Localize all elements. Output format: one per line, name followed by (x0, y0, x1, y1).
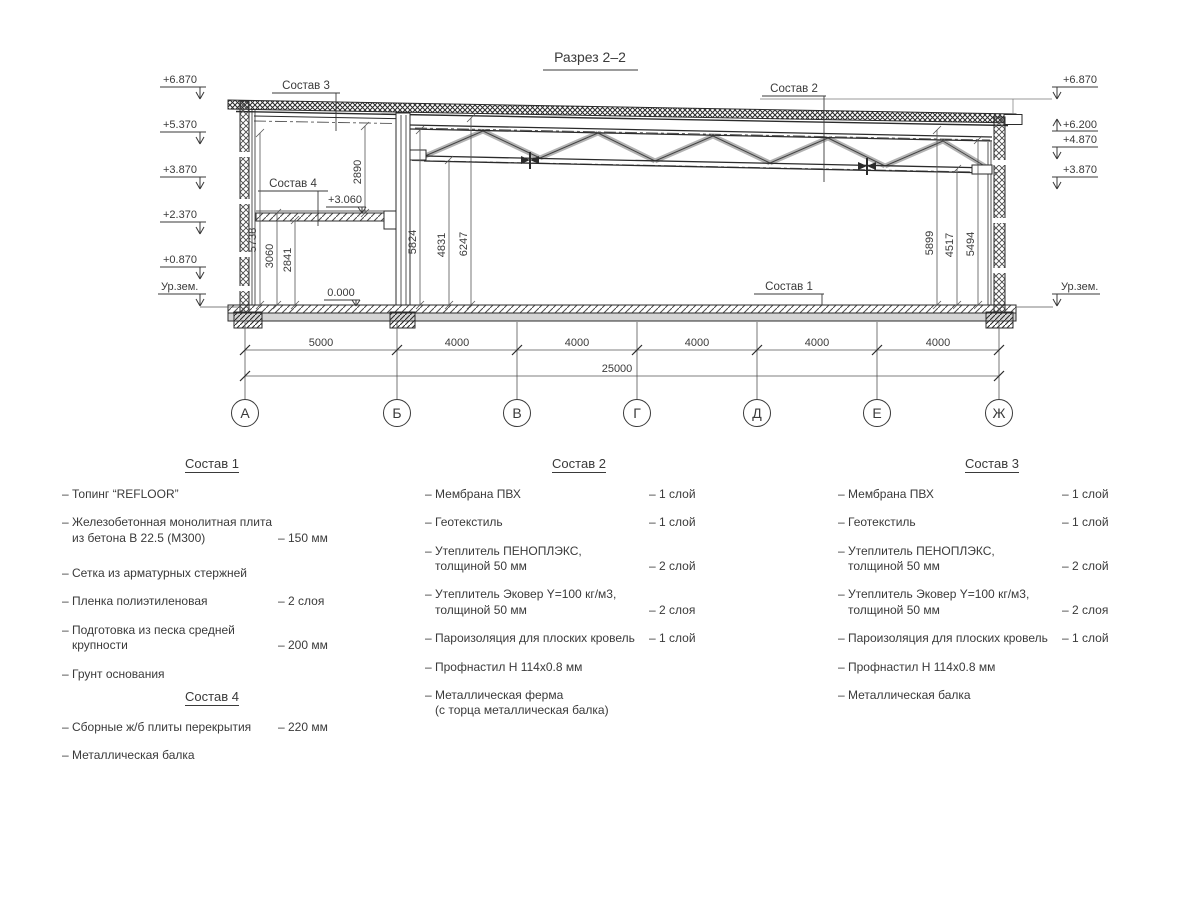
foundation-block (234, 312, 262, 328)
axis-label: Е (872, 405, 881, 421)
list-item: – Утеплитель Эковер Y=100 кг/м3,толщиной… (425, 587, 733, 618)
list-item: – Пароизоляция для плоских кровель – 1 с… (425, 631, 733, 646)
list-item: – Геотекстиль – 1 слой (425, 515, 733, 530)
composition-list-3: Состав 3 – Мембрана ПВХ – 1 слой – Геоте… (838, 456, 1146, 716)
elevation-label: +6.870 (1063, 74, 1097, 86)
elevation-label: +6.870 (163, 74, 197, 86)
axis-label: Б (392, 405, 401, 421)
elevation-label: Ур.зем. (161, 281, 198, 293)
composition-list-1: Состав 1 – Топинг “REFLOOR” – Железобето… (62, 456, 362, 777)
elevation-label: +4.870 (1063, 134, 1097, 146)
list-item: – Металлическая балка (838, 688, 1146, 703)
level-label: +3.060 (328, 194, 362, 206)
span-dim: 5000 (309, 337, 333, 349)
middle-wall (396, 113, 410, 305)
right-wall (988, 117, 1006, 321)
leader-label: Состав 4 (269, 178, 317, 190)
list-item: – Подготовка из песка среднейкрупности –… (62, 623, 362, 654)
list-item: – Утеплитель Эковер Y=100 кг/м3,толщиной… (838, 587, 1146, 618)
elevation-label: +3.870 (163, 164, 197, 176)
foundation-block (986, 312, 1013, 328)
list-title: Состав 2 (425, 456, 733, 471)
list-item: – Мембрана ПВХ – 1 слой (425, 487, 733, 502)
list-item: – Грунт основания (62, 667, 362, 682)
elevation-label: Ур.зем. (1061, 281, 1098, 293)
dim-label: 5494 (965, 232, 977, 256)
elevation-label: +5.370 (163, 119, 197, 131)
dim-label: 4831 (436, 233, 448, 257)
list-title: Состав 4 (62, 689, 362, 704)
list-item: – Металлическая ферма(с торца металличес… (425, 688, 733, 719)
list-item: – Мембрана ПВХ – 1 слой (838, 487, 1146, 502)
dim-label: 5824 (407, 230, 419, 254)
span-dim: 4000 (685, 337, 709, 349)
roof-assembly (228, 99, 1052, 126)
span-dim: 4000 (445, 337, 469, 349)
axis-label: Д (752, 405, 762, 421)
axis-label: Г (633, 405, 641, 421)
page-title: Разрез 2–2 (554, 49, 626, 65)
list-item: – Металлическая балка (62, 748, 362, 763)
foundation-block (390, 312, 415, 328)
list-item: – Утеплитель ПЕНОПЛЭКС,толщиной 50 мм – … (425, 544, 733, 575)
dim-label: 5738 (247, 228, 259, 252)
leader-label: Состав 2 (770, 83, 818, 95)
axis-bubbles: А Б В Г Д Е Ж (232, 400, 1013, 427)
list-item: – Железобетонная монолитная плитаиз бето… (62, 515, 362, 546)
dimension-chain: 5000 4000 4000 4000 4000 4000 25000 (240, 322, 1004, 399)
elevation-marks-right: +6.870 +6.200 +4.870 +3.870 Ур.зем. (1052, 74, 1100, 306)
dim-label: 6247 (458, 232, 470, 256)
list-item: – Профнастил Н 114х0.8 мм (838, 660, 1146, 675)
elevation-label: +3.870 (1063, 164, 1097, 176)
list-item: – Топинг “REFLOOR” (62, 487, 362, 502)
dim-label: 2890 (352, 160, 364, 184)
list-item: – Профнастил Н 114х0.8 мм (425, 660, 733, 675)
elevation-label: +0.870 (163, 254, 197, 266)
list-title: Состав 3 (838, 456, 1146, 471)
level-label: 0.000 (327, 287, 355, 299)
leader-label: Состав 1 (765, 281, 813, 293)
list-item: – Пленка полиэтиленовая – 2 слоя (62, 594, 362, 609)
list-item: – Сборные ж/б плиты перекрытия – 220 мм (62, 720, 362, 735)
list-item: – Геотекстиль – 1 слой (838, 515, 1146, 530)
elevation-label: +2.370 (163, 209, 197, 221)
span-dim: 4000 (926, 337, 950, 349)
dim-label: 5899 (924, 231, 936, 255)
dim-label: 3060 (264, 244, 276, 268)
left-wall (239, 101, 255, 321)
roof-truss (410, 125, 1000, 175)
composition-list-2: Состав 2 – Мембрана ПВХ – 1 слой – Геоте… (425, 456, 733, 732)
axis-label: А (240, 405, 250, 421)
list-item: – Пароизоляция для плоских кровель – 1 с… (838, 631, 1146, 646)
list-title: Состав 1 (62, 456, 362, 471)
axis-label: В (512, 405, 521, 421)
drawing-title: Разрез 2–2 (543, 49, 638, 70)
elevation-marks-left: +6.870 +5.370 +3.870 +2.370 +0.870 Ур.зе… (158, 74, 206, 306)
drawing-sheet: Разрез 2–2 (0, 0, 1200, 900)
axis-label: Ж (993, 405, 1006, 421)
list-item: – Утеплитель ПЕНОПЛЭКС,толщиной 50 мм – … (838, 544, 1146, 575)
floor-slab (200, 305, 1053, 328)
leader-label: Состав 3 (282, 80, 330, 92)
total-dim: 25000 (602, 363, 633, 375)
elevation-label: +6.200 (1063, 119, 1097, 131)
section-drawing: Разрез 2–2 (0, 0, 1200, 445)
dim-label: 4517 (944, 233, 956, 257)
span-dim: 4000 (565, 337, 589, 349)
span-dim: 4000 (805, 337, 829, 349)
dim-label: 2841 (282, 248, 294, 272)
list-item: – Сетка из арматурных стержней (62, 566, 362, 581)
